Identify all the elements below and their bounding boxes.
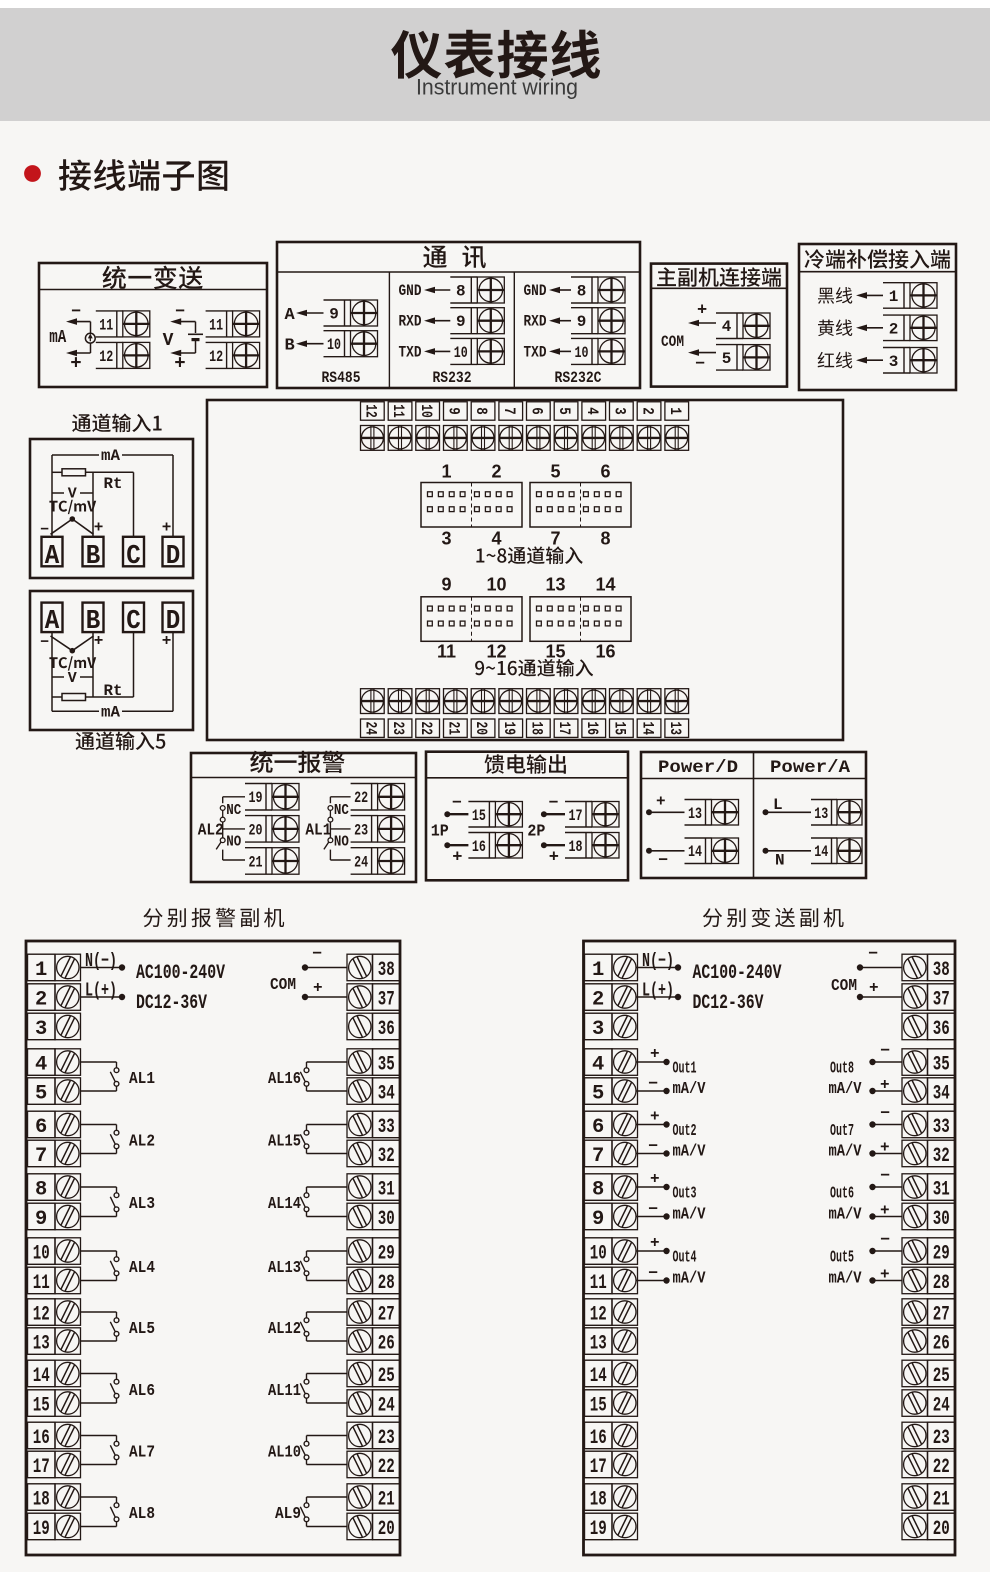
svg-text:−: − — [868, 945, 878, 963]
svg-text:9: 9 — [441, 575, 451, 595]
svg-text:7: 7 — [500, 407, 518, 415]
svg-text:5: 5 — [555, 407, 573, 415]
svg-text:+: + — [650, 1108, 660, 1126]
svg-text:6: 6 — [35, 1116, 47, 1139]
svg-text:V: V — [163, 331, 174, 351]
svg-text:Out1: Out1 — [673, 1059, 697, 1078]
svg-text:+: + — [650, 1170, 660, 1188]
svg-text:21: 21 — [249, 854, 263, 872]
svg-text:−: − — [548, 794, 558, 812]
svg-text:14: 14 — [638, 721, 656, 735]
svg-text:15: 15 — [472, 807, 486, 825]
svg-text:7: 7 — [550, 529, 560, 549]
svg-text:30: 30 — [933, 1208, 950, 1231]
svg-text:3: 3 — [441, 529, 451, 549]
svg-text:AL3: AL3 — [129, 1195, 155, 1214]
svg-text:2: 2 — [889, 320, 899, 338]
svg-text:8: 8 — [456, 283, 466, 301]
svg-text:11: 11 — [437, 642, 456, 662]
svg-text:4: 4 — [592, 1054, 604, 1077]
svg-text:−: − — [312, 945, 322, 963]
svg-text:1: 1 — [592, 959, 604, 982]
svg-text:AL16: AL16 — [268, 1070, 301, 1089]
svg-text:AL4: AL4 — [129, 1259, 155, 1278]
svg-text:10: 10 — [327, 336, 341, 354]
svg-text:AL7: AL7 — [129, 1444, 155, 1463]
svg-text:10: 10 — [590, 1243, 607, 1266]
svg-text:2P: 2P — [527, 823, 545, 842]
svg-text:5: 5 — [35, 1083, 47, 1106]
svg-text:NC: NC — [334, 803, 349, 819]
svg-text:16: 16 — [595, 642, 615, 662]
svg-text:DC12-36V: DC12-36V — [136, 992, 207, 1015]
svg-text:27: 27 — [933, 1304, 950, 1327]
svg-text:GND: GND — [524, 282, 547, 300]
svg-text:TXD: TXD — [399, 343, 422, 361]
svg-text:23: 23 — [378, 1427, 395, 1450]
svg-text:11: 11 — [33, 1272, 50, 1295]
svg-text:6: 6 — [528, 407, 546, 415]
svg-text:+: + — [869, 979, 879, 997]
svg-text:AL13: AL13 — [268, 1259, 301, 1278]
svg-text:L(+): L(+) — [85, 980, 117, 1002]
svg-text:Out8: Out8 — [830, 1059, 854, 1078]
svg-text:+: + — [174, 353, 185, 375]
svg-text:25: 25 — [378, 1365, 395, 1388]
svg-text:AL9: AL9 — [275, 1505, 301, 1524]
svg-text:13: 13 — [688, 805, 702, 823]
svg-text:37: 37 — [933, 989, 950, 1012]
svg-text:−: − — [880, 1105, 890, 1123]
svg-text:13: 13 — [33, 1333, 50, 1356]
svg-text:24: 24 — [933, 1395, 950, 1418]
svg-text:−: − — [880, 1042, 890, 1060]
svg-text:+: + — [650, 1045, 660, 1063]
svg-text:23: 23 — [354, 821, 368, 839]
svg-text:10: 10 — [417, 404, 435, 418]
svg-text:8: 8 — [577, 283, 587, 301]
svg-text:15: 15 — [611, 721, 629, 735]
svg-text:22: 22 — [354, 789, 368, 807]
svg-text:14: 14 — [590, 1365, 607, 1388]
svg-text:35: 35 — [933, 1054, 950, 1077]
svg-text:19: 19 — [590, 1518, 607, 1541]
svg-text:4: 4 — [722, 318, 732, 336]
svg-text:mA/V: mA/V — [829, 1142, 862, 1161]
svg-text:AL12: AL12 — [268, 1320, 301, 1339]
svg-text:+: + — [162, 519, 172, 537]
svg-text:+: + — [880, 1076, 890, 1094]
svg-text:mA/V: mA/V — [829, 1269, 862, 1288]
svg-text:35: 35 — [378, 1054, 395, 1077]
svg-text:12: 12 — [33, 1304, 50, 1327]
svg-text:−: − — [175, 303, 185, 322]
svg-text:12: 12 — [590, 1304, 607, 1327]
svg-text:TXD: TXD — [524, 343, 547, 361]
svg-text:25: 25 — [933, 1365, 950, 1388]
svg-text:19: 19 — [249, 789, 263, 807]
svg-text:20: 20 — [249, 821, 263, 839]
svg-text:2: 2 — [35, 989, 47, 1012]
svg-text:36: 36 — [933, 1018, 950, 1041]
svg-text:NO: NO — [334, 835, 349, 851]
svg-text:COM: COM — [270, 976, 296, 995]
svg-text:21: 21 — [378, 1489, 395, 1512]
svg-text:5: 5 — [592, 1083, 604, 1106]
svg-text:8: 8 — [35, 1179, 47, 1202]
svg-text:C: C — [126, 542, 141, 572]
svg-text:−: − — [648, 1138, 658, 1156]
svg-text:24: 24 — [362, 721, 380, 735]
svg-text:−: − — [71, 303, 81, 322]
svg-text:13: 13 — [590, 1333, 607, 1356]
svg-text:29: 29 — [933, 1243, 950, 1266]
svg-text:21: 21 — [445, 721, 463, 735]
svg-text:mA: mA — [101, 704, 120, 722]
svg-text:1: 1 — [35, 959, 47, 982]
svg-text:33: 33 — [933, 1116, 950, 1139]
svg-text:24: 24 — [354, 854, 368, 872]
svg-text:AL6: AL6 — [129, 1382, 155, 1401]
svg-text:+: + — [162, 632, 172, 650]
svg-text:38: 38 — [933, 959, 950, 982]
svg-text:3: 3 — [611, 407, 629, 415]
svg-text:17: 17 — [555, 721, 573, 735]
svg-text:2: 2 — [592, 989, 604, 1012]
svg-text:Out6: Out6 — [830, 1184, 854, 1203]
svg-text:5: 5 — [550, 462, 560, 482]
svg-text:29: 29 — [378, 1243, 395, 1266]
svg-text:−: − — [695, 355, 705, 373]
svg-text:28: 28 — [378, 1272, 395, 1295]
svg-text:COM: COM — [831, 977, 857, 996]
svg-text:32: 32 — [933, 1145, 950, 1168]
svg-text:GND: GND — [399, 282, 422, 300]
svg-text:AC100-240V: AC100-240V — [136, 962, 225, 985]
svg-text:13: 13 — [545, 575, 565, 595]
svg-text:32: 32 — [378, 1145, 395, 1168]
svg-text:11: 11 — [590, 1272, 607, 1295]
svg-text:Power/D: Power/D — [658, 758, 738, 778]
svg-text:14: 14 — [814, 843, 828, 861]
svg-text:Out3: Out3 — [673, 1184, 697, 1203]
svg-text:AL1: AL1 — [129, 1070, 155, 1089]
svg-text:4: 4 — [491, 529, 501, 549]
svg-text:4: 4 — [583, 407, 601, 415]
svg-text:24: 24 — [378, 1395, 395, 1418]
svg-text:+: + — [549, 849, 559, 868]
svg-text:12: 12 — [486, 642, 506, 662]
svg-text:26: 26 — [933, 1333, 950, 1356]
svg-text:15: 15 — [590, 1395, 607, 1418]
svg-text:22: 22 — [417, 721, 435, 735]
svg-text:20: 20 — [933, 1518, 950, 1541]
svg-text:9: 9 — [445, 407, 463, 415]
svg-text:−: − — [880, 1167, 890, 1185]
svg-text:16: 16 — [583, 721, 601, 735]
svg-text:3: 3 — [592, 1018, 604, 1041]
svg-text:NO: NO — [226, 835, 241, 851]
svg-text:Out5: Out5 — [830, 1248, 854, 1267]
svg-text:12: 12 — [362, 404, 380, 418]
svg-text:36: 36 — [378, 1018, 395, 1041]
svg-text:8: 8 — [592, 1179, 604, 1202]
svg-text:9: 9 — [329, 306, 339, 324]
svg-text:+: + — [656, 793, 666, 811]
svg-text:B: B — [285, 337, 295, 356]
svg-text:3: 3 — [889, 353, 899, 371]
svg-text:30: 30 — [378, 1208, 395, 1231]
svg-text:13: 13 — [814, 805, 828, 823]
svg-text:38: 38 — [378, 959, 395, 982]
svg-text:14: 14 — [595, 575, 615, 595]
svg-text:17: 17 — [569, 807, 583, 825]
svg-text:12: 12 — [209, 348, 223, 366]
svg-text:16: 16 — [472, 838, 486, 856]
svg-text:22: 22 — [378, 1456, 395, 1479]
svg-text:9: 9 — [35, 1208, 47, 1231]
svg-text:Power/A: Power/A — [770, 758, 851, 778]
svg-text:RS232C: RS232C — [555, 369, 602, 387]
svg-text:1: 1 — [441, 462, 451, 482]
svg-text:−: − — [880, 1231, 890, 1249]
svg-text:mA: mA — [49, 328, 66, 348]
svg-text:5: 5 — [722, 350, 732, 368]
svg-text:mA/V: mA/V — [673, 1079, 706, 1098]
svg-text:22: 22 — [933, 1456, 950, 1479]
svg-text:2: 2 — [491, 462, 501, 482]
svg-text:+: + — [650, 1234, 660, 1252]
svg-text:11: 11 — [99, 316, 113, 334]
svg-text:AL5: AL5 — [129, 1320, 155, 1339]
svg-text:23: 23 — [389, 721, 407, 735]
svg-text:Out4: Out4 — [673, 1248, 697, 1267]
svg-text:AL15: AL15 — [268, 1133, 301, 1152]
svg-text:15: 15 — [33, 1395, 50, 1418]
svg-text:1P: 1P — [431, 823, 449, 842]
svg-text:+: + — [70, 353, 81, 375]
svg-text:Out2: Out2 — [673, 1121, 697, 1140]
svg-text:mA/V: mA/V — [673, 1205, 706, 1224]
svg-text:RXD: RXD — [524, 313, 547, 331]
svg-text:AL1: AL1 — [305, 820, 331, 839]
svg-text:N(−): N(−) — [85, 950, 117, 972]
svg-text:−: − — [658, 852, 668, 870]
svg-text:28: 28 — [933, 1272, 950, 1295]
svg-text:−: − — [648, 1265, 658, 1283]
svg-text:−: − — [648, 1075, 658, 1093]
svg-text:23: 23 — [933, 1427, 950, 1450]
svg-text:+: + — [697, 302, 707, 321]
svg-text:19: 19 — [500, 721, 518, 735]
svg-text:NC: NC — [226, 803, 241, 819]
svg-text:10: 10 — [33, 1243, 50, 1266]
svg-text:DC12-36V: DC12-36V — [693, 992, 764, 1015]
svg-text:AC100-240V: AC100-240V — [693, 962, 782, 985]
svg-text:7: 7 — [35, 1145, 47, 1168]
svg-text:18: 18 — [569, 838, 583, 856]
svg-text:10: 10 — [486, 575, 506, 595]
svg-text:16: 16 — [33, 1427, 50, 1450]
svg-text:mA/V: mA/V — [829, 1205, 862, 1224]
svg-text:14: 14 — [688, 843, 702, 861]
svg-text:31: 31 — [933, 1179, 950, 1202]
svg-text:mA/V: mA/V — [673, 1269, 706, 1288]
svg-text:V: V — [68, 670, 77, 687]
svg-text:AL11: AL11 — [268, 1382, 301, 1401]
svg-text:+: + — [880, 1202, 890, 1220]
svg-text:Out7: Out7 — [830, 1121, 854, 1140]
svg-text:Instrument wiring: Instrument wiring — [416, 75, 578, 100]
svg-text:33: 33 — [378, 1116, 395, 1139]
svg-text:14: 14 — [33, 1365, 50, 1388]
svg-text:Rt: Rt — [104, 475, 123, 493]
svg-text:+: + — [880, 1139, 890, 1157]
svg-text:mA/V: mA/V — [673, 1142, 706, 1161]
svg-text:10: 10 — [575, 344, 589, 362]
svg-text:34: 34 — [933, 1083, 950, 1106]
svg-text:N: N — [775, 852, 785, 870]
svg-text:18: 18 — [528, 721, 546, 735]
svg-text:10: 10 — [454, 344, 468, 362]
svg-text:L(+): L(+) — [642, 980, 674, 1002]
svg-text:A: A — [285, 306, 296, 325]
svg-text:AL8: AL8 — [129, 1505, 155, 1524]
svg-text:6: 6 — [592, 1116, 604, 1139]
svg-text:37: 37 — [378, 989, 395, 1012]
svg-text:A: A — [45, 542, 60, 572]
svg-text:mA: mA — [101, 447, 120, 465]
svg-text:4: 4 — [35, 1054, 47, 1077]
svg-text:16: 16 — [590, 1427, 607, 1450]
svg-text:+: + — [880, 1266, 890, 1284]
svg-text:20: 20 — [378, 1518, 395, 1541]
svg-text:B: B — [86, 542, 101, 572]
svg-text:−: − — [40, 634, 49, 651]
svg-text:+: + — [313, 979, 323, 997]
svg-text:31: 31 — [378, 1179, 395, 1202]
svg-text:AL14: AL14 — [268, 1195, 301, 1214]
svg-text:17: 17 — [33, 1456, 50, 1479]
svg-text:N(−): N(−) — [642, 950, 674, 972]
svg-text:COM: COM — [661, 333, 684, 351]
svg-text:17: 17 — [590, 1456, 607, 1479]
svg-text:1: 1 — [889, 288, 899, 306]
svg-text:−: − — [648, 1201, 658, 1219]
svg-text:27: 27 — [378, 1304, 395, 1327]
svg-text:20: 20 — [472, 721, 490, 735]
svg-text:34: 34 — [378, 1083, 395, 1106]
svg-text:8: 8 — [600, 529, 610, 549]
svg-text:9: 9 — [577, 313, 587, 331]
svg-text:8: 8 — [472, 407, 490, 415]
svg-text:mA/V: mA/V — [829, 1079, 862, 1098]
svg-text:RXD: RXD — [399, 313, 422, 331]
svg-text:18: 18 — [590, 1489, 607, 1512]
svg-text:7: 7 — [592, 1145, 604, 1168]
svg-text:9: 9 — [456, 313, 466, 331]
svg-text:+: + — [94, 632, 104, 650]
svg-text:11: 11 — [209, 316, 223, 334]
svg-text:6: 6 — [600, 462, 610, 482]
svg-text:26: 26 — [378, 1333, 395, 1356]
svg-text:L: L — [773, 796, 783, 814]
svg-text:−: − — [452, 794, 462, 812]
svg-text:AL2: AL2 — [129, 1133, 155, 1152]
svg-text:18: 18 — [33, 1489, 50, 1512]
svg-text:RS232: RS232 — [433, 369, 472, 387]
svg-text:11: 11 — [389, 404, 407, 418]
svg-text:9: 9 — [592, 1208, 604, 1231]
svg-text:D: D — [166, 542, 181, 572]
svg-text:+: + — [452, 849, 462, 868]
svg-text:12: 12 — [99, 348, 113, 366]
svg-text:13: 13 — [666, 721, 684, 735]
svg-text:3: 3 — [35, 1018, 47, 1041]
svg-text:+: + — [94, 519, 104, 537]
svg-text:RS485: RS485 — [322, 369, 361, 387]
svg-text:Rt: Rt — [104, 682, 123, 700]
svg-text:AL2: AL2 — [198, 820, 224, 839]
svg-text:21: 21 — [933, 1489, 950, 1512]
svg-text:19: 19 — [33, 1518, 50, 1541]
svg-text:2: 2 — [638, 407, 656, 415]
svg-text:1: 1 — [666, 407, 684, 415]
svg-text:15: 15 — [545, 642, 565, 662]
svg-text:AL10: AL10 — [268, 1444, 301, 1463]
